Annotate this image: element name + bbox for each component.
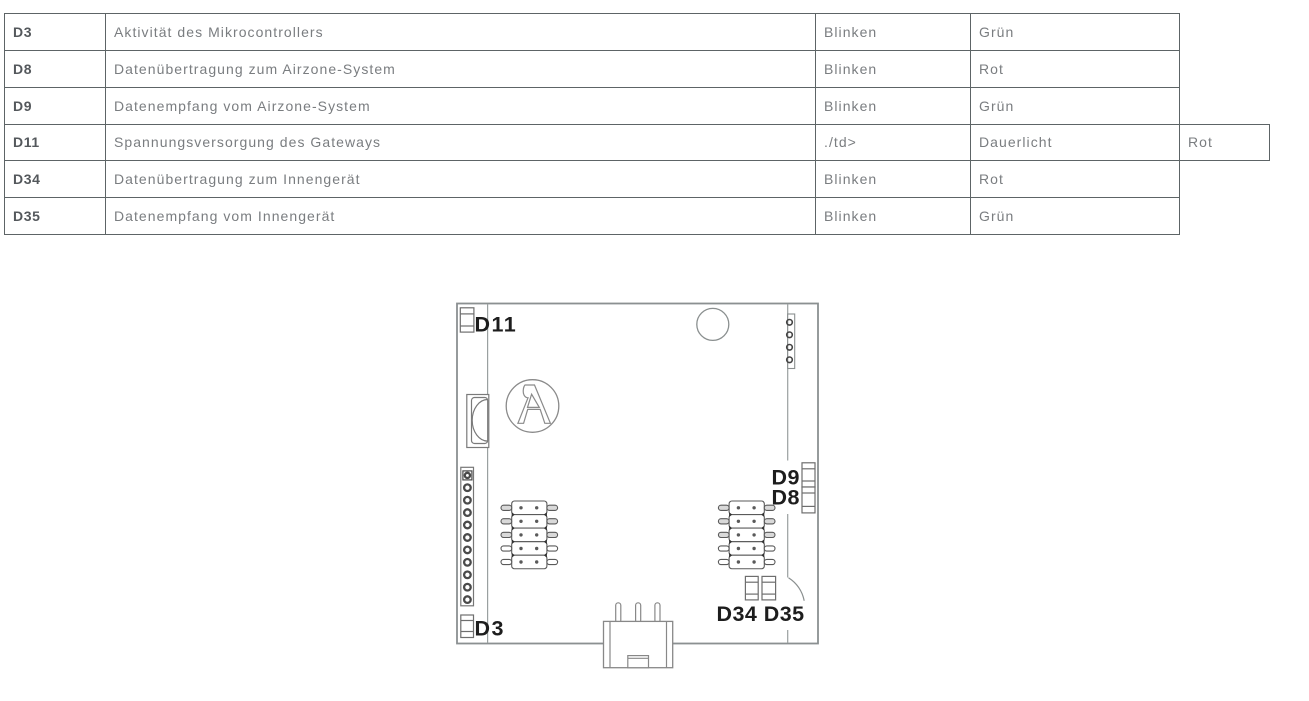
svg-text:D8: D8 (772, 486, 800, 510)
svg-text:D34 D35: D34 D35 (717, 602, 805, 626)
svg-text:D3: D3 (475, 617, 505, 641)
svg-text:D11: D11 (475, 313, 518, 337)
